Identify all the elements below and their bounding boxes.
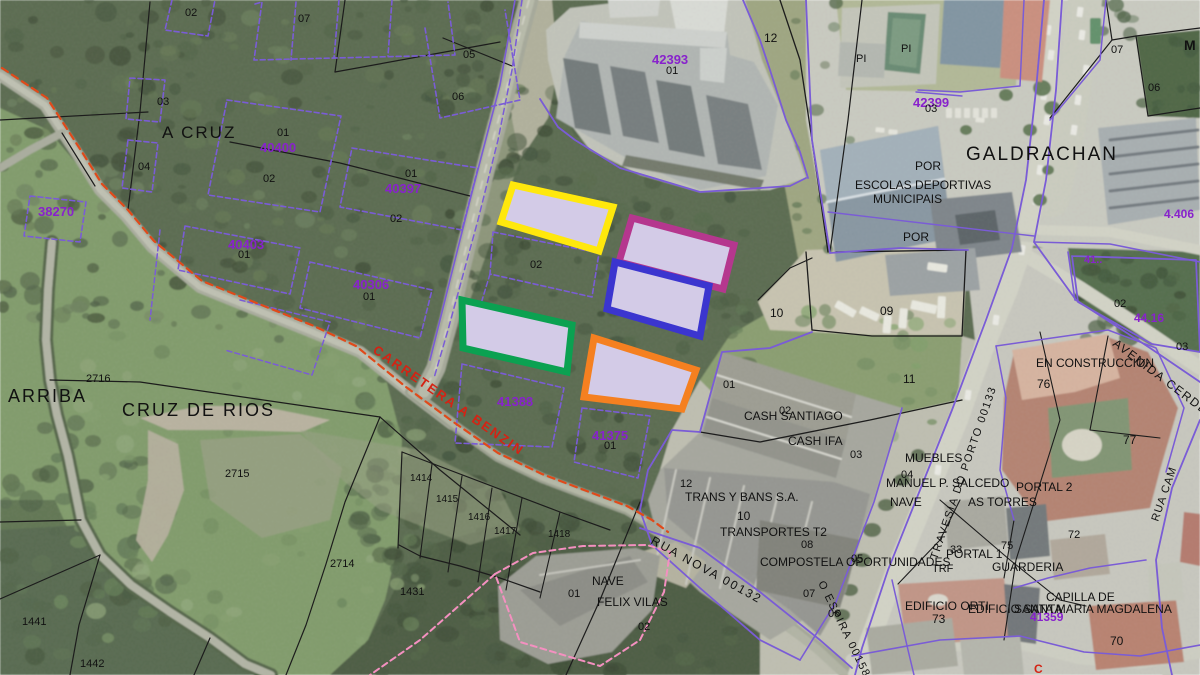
svg-text:02: 02 <box>779 405 791 417</box>
svg-text:05: 05 <box>851 553 863 565</box>
svg-text:01: 01 <box>604 440 616 452</box>
svg-text:33: 33 <box>950 544 962 556</box>
svg-text:41388: 41388 <box>497 394 533 409</box>
svg-text:1442: 1442 <box>80 658 104 670</box>
svg-text:PI: PI <box>901 43 911 55</box>
svg-text:M: M <box>1184 37 1196 53</box>
svg-text:12: 12 <box>680 478 692 490</box>
svg-text:02: 02 <box>638 621 650 633</box>
svg-text:44.16: 44.16 <box>1134 311 1164 325</box>
svg-text:2715: 2715 <box>225 468 249 480</box>
svg-text:01: 01 <box>363 291 375 303</box>
svg-text:POR: POR <box>903 230 929 244</box>
svg-text:1415: 1415 <box>436 494 459 505</box>
svg-text:07: 07 <box>803 588 815 600</box>
svg-text:NAVE: NAVE <box>890 495 922 509</box>
svg-text:01: 01 <box>568 588 580 600</box>
svg-text:TRF: TRF <box>932 563 954 575</box>
svg-text:40397: 40397 <box>385 181 421 196</box>
svg-text:06: 06 <box>1148 82 1160 94</box>
svg-text:GALDRACHAN: GALDRACHAN <box>966 144 1118 165</box>
svg-text:70: 70 <box>1110 634 1124 648</box>
svg-text:01: 01 <box>405 168 417 180</box>
svg-text:2716: 2716 <box>86 373 110 385</box>
svg-text:SANTA MARIA MAGDALENA: SANTA MARIA MAGDALENA <box>1014 602 1172 616</box>
svg-text:02: 02 <box>185 7 197 19</box>
svg-text:10: 10 <box>770 306 784 320</box>
svg-text:NAVE: NAVE <box>592 574 624 588</box>
svg-text:E ARRIBA: E ARRIBA <box>0 386 87 406</box>
svg-text:CASH IFA: CASH IFA <box>788 434 843 448</box>
svg-text:03: 03 <box>850 449 862 461</box>
svg-text:2714: 2714 <box>330 558 354 570</box>
svg-text:ESCOLAS DEPORTIVAS: ESCOLAS DEPORTIVAS <box>855 178 991 192</box>
svg-text:MUNICIPAIS: MUNICIPAIS <box>873 192 942 206</box>
svg-text:GUARDERIA: GUARDERIA <box>992 560 1063 574</box>
svg-text:1414: 1414 <box>410 473 433 484</box>
svg-text:02: 02 <box>530 259 542 271</box>
svg-text:12: 12 <box>764 31 778 45</box>
svg-text:1441: 1441 <box>22 616 46 628</box>
svg-text:FELIX VILAS: FELIX VILAS <box>597 595 668 609</box>
svg-text:03: 03 <box>157 96 169 108</box>
svg-text:10: 10 <box>737 509 751 523</box>
svg-text:40400: 40400 <box>260 140 296 155</box>
svg-text:01: 01 <box>666 65 678 77</box>
svg-text:TRANS Y BANS S.A.: TRANS Y BANS S.A. <box>685 490 799 504</box>
svg-text:MANUEL P. SALCEDO: MANUEL P. SALCEDO <box>886 476 1009 490</box>
svg-text:1417: 1417 <box>494 526 517 537</box>
svg-text:MUEBLES: MUEBLES <box>905 451 962 465</box>
svg-text:02: 02 <box>390 213 402 225</box>
svg-text:AS TORRES: AS TORRES <box>968 495 1037 509</box>
svg-text:TRANSPORTES T2: TRANSPORTES T2 <box>720 525 827 539</box>
svg-text:C: C <box>1034 662 1043 675</box>
svg-text:01: 01 <box>723 379 735 391</box>
svg-text:40306: 40306 <box>353 277 389 292</box>
svg-text:02: 02 <box>263 173 275 185</box>
svg-text:01: 01 <box>277 127 289 139</box>
svg-text:04: 04 <box>138 161 150 173</box>
svg-text:76: 76 <box>1037 377 1051 391</box>
svg-text:41..: 41.. <box>1084 254 1102 266</box>
svg-text:11: 11 <box>903 372 916 386</box>
svg-text:1416: 1416 <box>468 512 491 523</box>
svg-text:03: 03 <box>1176 341 1188 353</box>
svg-text:POR: POR <box>915 159 941 173</box>
svg-text:CASH SANTIAGO: CASH SANTIAGO <box>744 409 843 423</box>
svg-text:4.406: 4.406 <box>1164 207 1194 221</box>
svg-text:02: 02 <box>1114 298 1126 310</box>
svg-text:1418: 1418 <box>548 529 571 540</box>
svg-text:PORTAL 2: PORTAL 2 <box>1016 480 1073 494</box>
svg-text:07: 07 <box>298 13 310 25</box>
svg-text:03: 03 <box>925 103 937 115</box>
svg-text:A CRUZ: A CRUZ <box>162 123 236 142</box>
svg-text:73: 73 <box>932 612 946 626</box>
svg-text:CRUZ DE RIOS: CRUZ DE RIOS <box>122 400 275 420</box>
svg-text:05: 05 <box>463 49 475 61</box>
svg-text:1431: 1431 <box>400 586 424 598</box>
svg-text:38270: 38270 <box>38 204 74 219</box>
svg-text:01: 01 <box>238 249 250 261</box>
svg-text:72: 72 <box>1068 529 1080 541</box>
svg-text:06: 06 <box>452 91 464 103</box>
svg-text:08: 08 <box>801 539 813 551</box>
svg-text:PI: PI <box>856 53 866 65</box>
svg-text:07: 07 <box>1111 44 1123 56</box>
svg-text:75: 75 <box>1001 540 1013 552</box>
svg-text:77: 77 <box>1123 433 1137 447</box>
svg-text:09: 09 <box>880 304 894 318</box>
